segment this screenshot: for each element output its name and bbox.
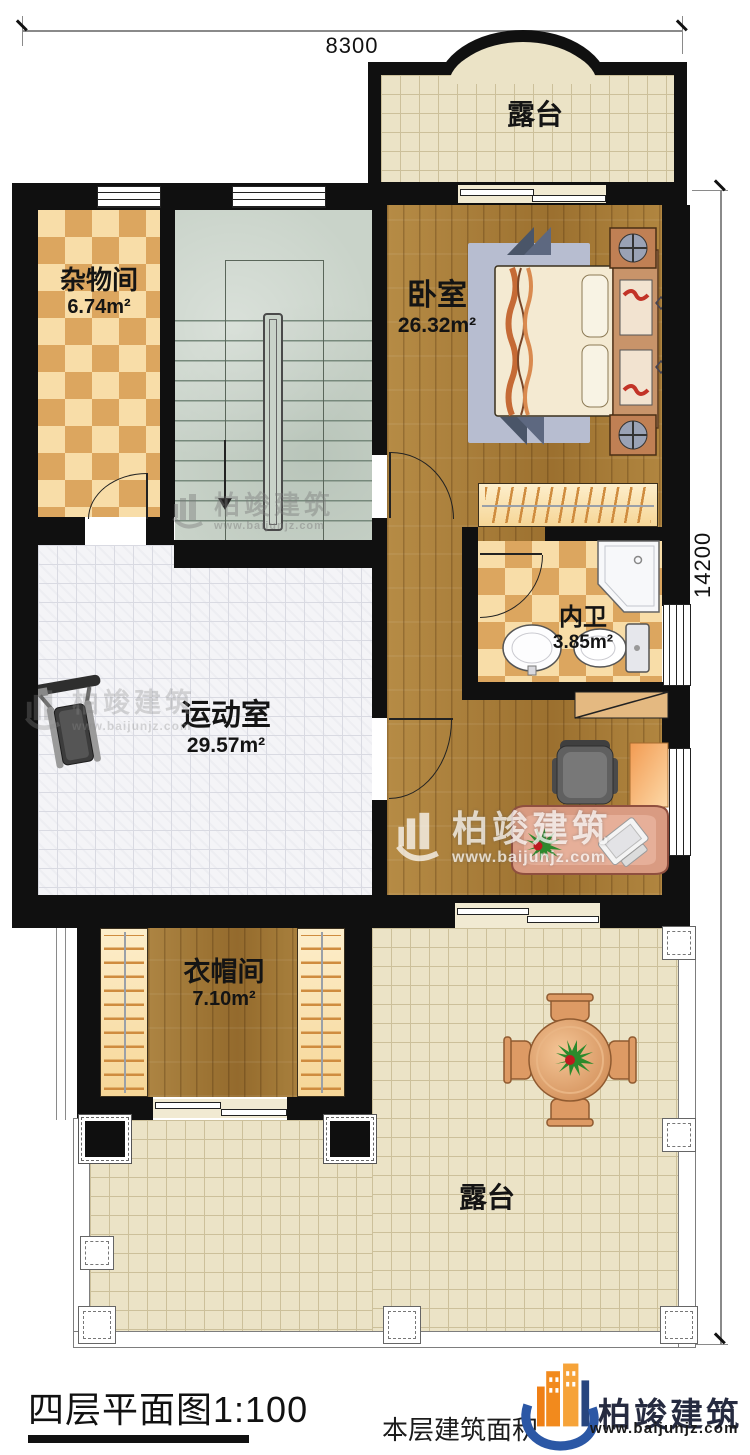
sliding-panel [460, 189, 534, 196]
right-dimension-value: 14200 [688, 495, 718, 635]
wall-storage-bottom [38, 517, 85, 545]
cloakroom-floor [148, 928, 297, 1097]
wall-cloak-right [345, 928, 372, 1120]
terrace-bottom-floor-right [372, 928, 678, 1331]
cloakroom-wardrobe-left [100, 928, 148, 1097]
storage-window [97, 186, 161, 208]
brand-logo-icon [518, 1362, 602, 1454]
wall-storage-stairs-divider [160, 205, 175, 517]
column-post [323, 1114, 377, 1164]
wall-cloak-left [77, 928, 100, 1120]
room-label-cloakroom: 衣帽间 7.10m² [144, 957, 304, 1011]
room-label-terrace-top: 露台 [455, 99, 615, 131]
room-label-storage: 杂物间 6.74m² [19, 266, 179, 319]
title-underline [28, 1435, 249, 1443]
dining-table-icon [503, 993, 637, 1127]
room-label-terrace-bottom: 露台 [407, 1182, 567, 1214]
wardrobe-rail [482, 505, 654, 507]
sliding-panel [457, 908, 529, 915]
wall-bathroom-left [462, 527, 478, 682]
room-label-gym: 运动室 29.57m² [146, 699, 306, 758]
desk-set-icon [505, 688, 675, 880]
stair-direction-arrow-icon [218, 498, 232, 510]
top-dimension-ext-left [22, 16, 23, 46]
sliding-panel [155, 1102, 221, 1109]
brand-website: www.baijunjz.com [590, 1420, 739, 1437]
drawing-title: 四层平面图1:100 [28, 1381, 308, 1433]
wall-storage-door-stub [146, 517, 174, 545]
room-label-bathroom: 内卫 3.85m² [503, 604, 663, 653]
wardrobe-rail [124, 932, 126, 1093]
stairs-window [232, 186, 326, 208]
floor-area-label: 本层建筑面积 [382, 1410, 538, 1447]
railing-pilaster [78, 1306, 116, 1344]
bathroom-window [663, 604, 691, 686]
stair-direction-line [224, 440, 226, 500]
railing-pilaster [662, 926, 696, 960]
treadmill-icon [25, 663, 136, 778]
wall-right-outer-a [662, 205, 690, 606]
sliding-panel [527, 916, 599, 923]
railing-pilaster [660, 1306, 698, 1344]
bedroom-wardrobe [478, 483, 658, 527]
floor-plan-page: 8300 14200 露台 [0, 0, 750, 1455]
storage-room-floor [38, 210, 160, 517]
right-dimension-ext-bottom [692, 1344, 728, 1345]
wardrobe-rail [321, 932, 323, 1093]
cloakroom-wardrobe-right [297, 928, 345, 1097]
railing-pilaster [80, 1236, 114, 1270]
terrace-edge-line [56, 928, 66, 1120]
bed-icon [462, 225, 667, 460]
stair-handrail-slot [269, 319, 277, 525]
sliding-panel [221, 1109, 287, 1116]
top-dimension-value: 8300 [302, 33, 402, 59]
top-dimension-ext-right [682, 16, 683, 54]
wall-stairs-bottom [174, 540, 372, 568]
railing-pilaster [383, 1306, 421, 1344]
railing-pilaster [662, 1118, 696, 1152]
column-post [78, 1114, 132, 1164]
room-label-bedroom: 卧室 26.32m² [357, 279, 517, 338]
sliding-panel [532, 195, 606, 202]
top-dimension-line [22, 30, 682, 32]
wall-bedroom-left-b [372, 518, 387, 718]
right-dimension-line [720, 190, 722, 1345]
